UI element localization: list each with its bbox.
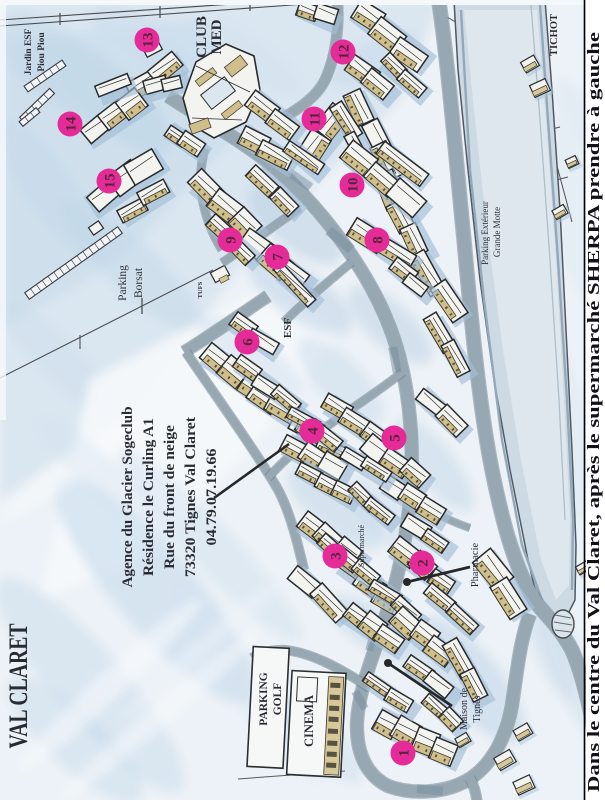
svg-text:Dans le centre du Val Claret,: Dans le centre du Val Claret, après le s… — [584, 31, 603, 792]
